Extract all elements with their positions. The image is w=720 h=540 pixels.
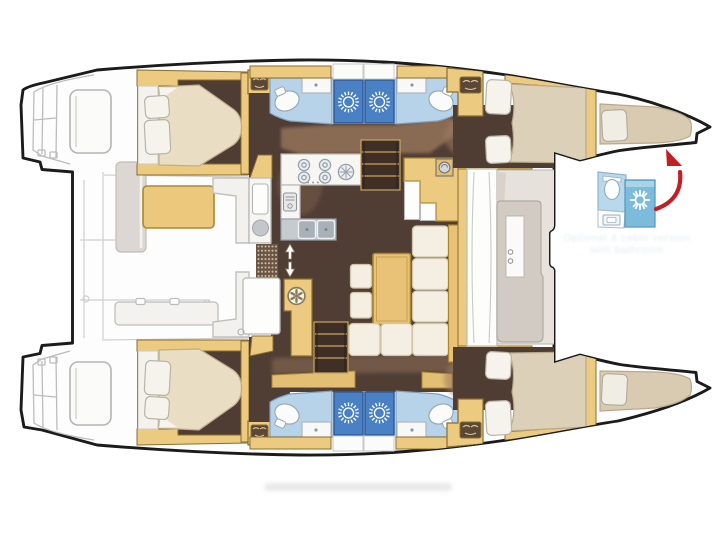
svg-text:with bathroom: with bathroom — [589, 244, 664, 256]
svg-text:Optional 4 cabin version: Optional 4 cabin version — [563, 232, 690, 244]
